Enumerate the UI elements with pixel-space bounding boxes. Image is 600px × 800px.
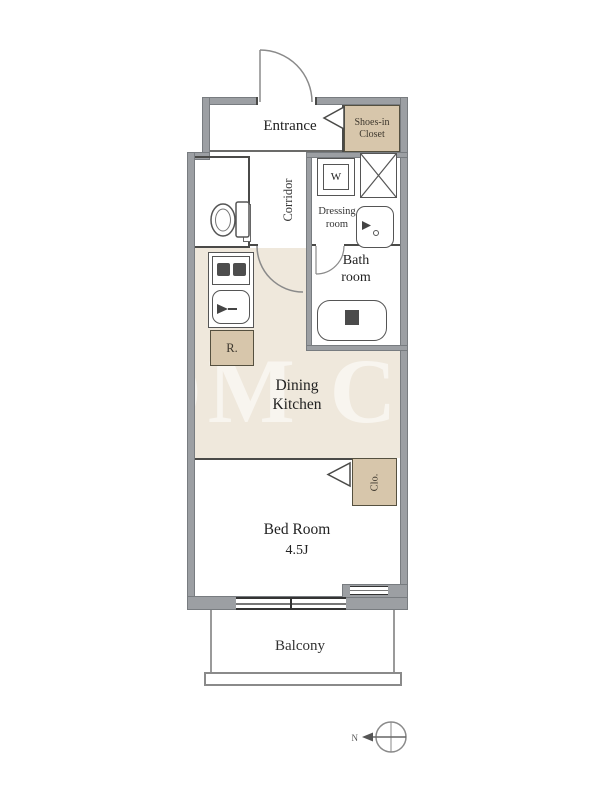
- balcony-side-right: [393, 610, 395, 674]
- washing-machine-pan: [323, 164, 349, 190]
- wall-bath-bottom: [306, 345, 408, 351]
- stove-burner-icon: [217, 263, 230, 276]
- toilet-door: [243, 204, 251, 242]
- entrance-door-opening: [258, 97, 315, 105]
- toilet-wall-bottom: [195, 246, 250, 248]
- wall-right: [400, 97, 408, 610]
- floorplan-canvas: OM CO Shoes-in Closet R. Clo. W: [0, 0, 600, 800]
- entrance-door-swing-icon: [260, 50, 312, 102]
- compass-north-label: N: [352, 733, 359, 743]
- balcony-window-center: [290, 597, 292, 610]
- door-jamb-right: [315, 97, 317, 105]
- compass-icon: N: [352, 722, 407, 752]
- bath-room-label: Bath room: [331, 253, 381, 287]
- balcony-label: Balcony: [240, 638, 360, 655]
- closet-arrow-icon: [328, 463, 350, 486]
- balcony-slab: [204, 672, 402, 686]
- kitchen-sink: [212, 290, 250, 324]
- bathtub-faucet-icon: [345, 310, 359, 325]
- corridor-label: Corridor: [278, 155, 298, 245]
- entrance-label: Entrance: [230, 118, 350, 135]
- bed-room-label: Bed Room: [222, 521, 372, 539]
- refrigerator-label: R.: [226, 341, 237, 356]
- balcony-side-left: [210, 610, 212, 674]
- stove-burner-icon: [233, 263, 246, 276]
- closet-label: Clo.: [369, 473, 380, 491]
- entrance-step-line: [210, 150, 342, 152]
- toilet-wall-top: [195, 156, 250, 158]
- refrigerator-space: R.: [210, 330, 254, 366]
- shoes-in-closet-label: Shoes-in Closet: [347, 117, 397, 141]
- wall-entrance-left: [202, 97, 210, 160]
- small-window-rail: [350, 590, 388, 591]
- dining-kitchen-label: Dining Kitchen: [257, 376, 337, 415]
- door-jamb-left: [256, 97, 258, 105]
- toilet-wall-right-upper: [248, 156, 250, 204]
- shoes-in-closet: Shoes-in Closet: [344, 105, 400, 152]
- wall-left: [187, 152, 195, 610]
- corridor-dk-wall-stub: [250, 244, 258, 246]
- bath-wall-left-stub: [312, 244, 316, 246]
- dressing-room-label: Dressing room: [307, 205, 367, 231]
- pipe-space: [360, 153, 397, 198]
- wall-middle-vertical: [306, 152, 312, 351]
- closet: Clo.: [352, 458, 397, 506]
- bed-room-size: 4.5J: [222, 543, 372, 559]
- dk-bedroom-divider: [195, 458, 355, 460]
